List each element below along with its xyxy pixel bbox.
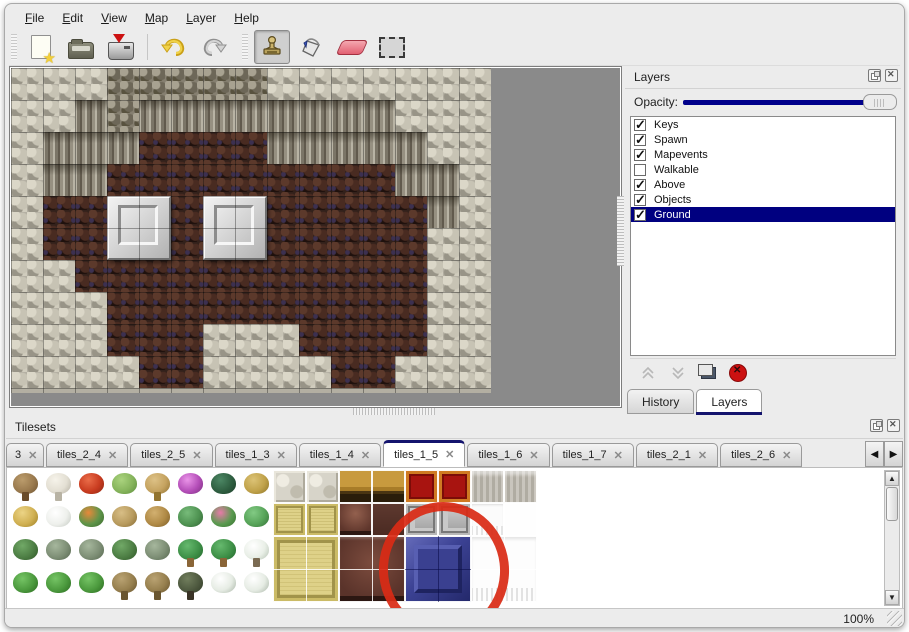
map-tile: [43, 260, 75, 292]
map-tile: [331, 132, 363, 164]
map-tile: [299, 68, 331, 100]
layers-dock-title: Layers: [634, 70, 670, 84]
scrollbar-thumb[interactable]: [886, 487, 898, 521]
vertical-splitter[interactable]: [617, 196, 624, 266]
map-tile: [11, 132, 43, 164]
close-panel-icon[interactable]: [885, 69, 898, 82]
layer-row-ground[interactable]: Ground: [631, 207, 895, 222]
map-tile: [139, 292, 171, 324]
map-tile: [107, 292, 139, 324]
tileset-tile-bush-pink[interactable]: [174, 470, 207, 503]
tileset-scrollbar[interactable]: ▲ ▼: [884, 470, 900, 606]
dock-tab-layers[interactable]: Layers: [696, 389, 762, 414]
map-tile: [43, 292, 75, 324]
tileset-tile-bush-gray[interactable]: [141, 536, 174, 569]
map-tile: [299, 132, 331, 164]
tileset-tile-sprouts[interactable]: [108, 536, 141, 569]
map-tile: [203, 132, 235, 164]
delete-layer-button[interactable]: [728, 363, 748, 383]
map-tile: [331, 164, 363, 196]
map-tile: [139, 100, 171, 132]
eraser-tool-button[interactable]: [334, 30, 370, 64]
tileset-tab-tiles_1_7[interactable]: tiles_1_7✕: [552, 443, 634, 467]
map-tile: [395, 324, 427, 356]
screenshot-stage: FileEditViewMapLayerHelp ★: [0, 0, 909, 632]
menu-item-edit[interactable]: Edit: [54, 9, 91, 27]
map-tile: [459, 100, 491, 132]
tileset-tile-tree-dead[interactable]: [42, 470, 75, 503]
tileset-content[interactable]: ▲ ▼: [6, 467, 903, 609]
tileset-tab-tiles_1_3[interactable]: tiles_1_3✕: [215, 443, 297, 467]
layer-row-walkable[interactable]: Walkable: [631, 162, 895, 177]
tilesets-dock-title: Tilesets: [15, 420, 56, 434]
layer-visibility-checkbox[interactable]: [634, 194, 646, 206]
scroll-tabs-right-button[interactable]: ▶: [884, 441, 903, 467]
redo-button[interactable]: [196, 30, 232, 64]
map-tile: [299, 164, 331, 196]
tileset-tab-3[interactable]: 3✕: [6, 443, 44, 467]
toolbar: ★: [9, 29, 900, 66]
map-tile: [171, 356, 203, 388]
map-tile: [459, 324, 491, 356]
platform-tile: [107, 196, 171, 260]
tileset-tile-carpet[interactable]: [405, 470, 438, 503]
map-tile: [203, 100, 235, 132]
tileset-tile-dark-tree[interactable]: [174, 569, 207, 602]
tileset-tab-tiles_2_5[interactable]: tiles_2_5✕: [130, 443, 212, 467]
map-tile: [299, 260, 331, 292]
tileset-tile-snow-conifer[interactable]: [207, 569, 240, 602]
map-tile: [395, 68, 427, 100]
tileset-tile-wood[interactable]: [372, 470, 405, 503]
layers-dock-header: Layers: [625, 66, 901, 89]
map-tile: [11, 260, 43, 292]
map-tile: [203, 260, 235, 292]
map-tile: [75, 196, 107, 228]
map-tile: [43, 324, 75, 356]
map-tile: [459, 164, 491, 196]
save-icon: [108, 42, 134, 60]
new-document-icon: ★: [31, 35, 51, 59]
map-tile: [395, 132, 427, 164]
map-tile: [299, 228, 331, 260]
duplicate-layer-button[interactable]: [698, 363, 718, 383]
tileset-tile-rose-bush[interactable]: [207, 503, 240, 536]
redo-icon: [201, 36, 227, 58]
tileset-tile-grayfab[interactable]: [471, 470, 504, 503]
map-tile: [43, 164, 75, 196]
map-tile: [459, 228, 491, 260]
layers-dock: Layers Opacity: KeysSpawnMapeventsWalkab…: [625, 66, 901, 416]
tab-close-icon[interactable]: ✕: [361, 449, 370, 462]
map-tile: [171, 228, 203, 260]
layer-name: Ground: [654, 209, 691, 221]
map-tile: [139, 260, 171, 292]
tab-close-icon[interactable]: ✕: [529, 449, 538, 462]
map-tile: [459, 260, 491, 292]
tileset-tile-flower-red[interactable]: [75, 470, 108, 503]
map-tile: [331, 292, 363, 324]
menu-item-view[interactable]: View: [93, 9, 135, 27]
undo-button[interactable]: [156, 30, 192, 64]
map-tile: [363, 196, 395, 228]
map-tile: [363, 228, 395, 260]
layer-name: Objects: [654, 194, 691, 206]
tab-label: tiles_1_5: [394, 449, 438, 461]
layer-list: KeysSpawnMapeventsWalkableAboveObjectsGr…: [630, 116, 896, 356]
map-tile: [203, 292, 235, 324]
tileset-tab-tiles_1_4[interactable]: tiles_1_4✕: [299, 443, 381, 467]
undo-icon: [161, 36, 187, 58]
map-tile: [11, 228, 43, 260]
tileset-tile-white[interactable]: [504, 503, 537, 536]
layer-name: Above: [654, 179, 685, 191]
map-canvas[interactable]: [11, 68, 491, 393]
tab-label: tiles_2_5: [141, 449, 185, 461]
map-tile: [427, 260, 459, 292]
menu-item-help[interactable]: Help: [226, 9, 267, 27]
tileset-tile-stump[interactable]: [108, 470, 141, 503]
map-tile: [427, 324, 459, 356]
tileset-tile-lilypad-big[interactable]: [240, 503, 273, 536]
zoom-level: 100%: [843, 612, 874, 626]
map-tile: [331, 100, 363, 132]
map-tile: [331, 196, 363, 228]
tileset-tile-lilypad[interactable]: [174, 503, 207, 536]
map-tile: [235, 164, 267, 196]
toolbar-grip[interactable]: [11, 34, 17, 60]
delete-icon: [729, 364, 747, 382]
horizontal-splitter[interactable]: [353, 408, 435, 415]
tileset-tile-dead-tree[interactable]: [141, 569, 174, 602]
map-tile: [139, 132, 171, 164]
tileset-tile-tatami[interactable]: [306, 503, 339, 536]
map-tile: [107, 324, 139, 356]
map-tile: [75, 260, 107, 292]
map-tile: [427, 196, 459, 228]
map-tile: [75, 292, 107, 324]
app-window: FileEditViewMapLayerHelp ★: [4, 3, 905, 628]
map-tile: [235, 100, 267, 132]
map-tile: [171, 260, 203, 292]
tileset-tile-carpet[interactable]: [438, 470, 471, 503]
tab-label: 3: [15, 449, 21, 461]
map-tile: [459, 68, 491, 100]
map-tile: [331, 260, 363, 292]
map-tile: [235, 68, 267, 100]
eraser-icon: [336, 40, 369, 55]
map-tile: [427, 356, 459, 388]
tab-label: tiles_2_6: [731, 449, 775, 461]
map-tile: [299, 356, 331, 388]
map-tile: [427, 228, 459, 260]
map-tile: [11, 356, 43, 388]
tileset-tile-palm[interactable]: [207, 536, 240, 569]
layer-visibility-checkbox[interactable]: [634, 134, 646, 146]
move-layer-up-button[interactable]: [638, 363, 658, 383]
map-tile: [395, 260, 427, 292]
tileset-tile-conifer[interactable]: [75, 569, 108, 602]
map-tile: [203, 68, 235, 100]
map-tile: [75, 100, 107, 132]
map-tile: [267, 100, 299, 132]
tab-close-icon[interactable]: ✕: [277, 449, 286, 462]
tileset-tile-tatami[interactable]: [273, 503, 306, 536]
map-tile: [43, 100, 75, 132]
chevron-down-icon: [670, 365, 686, 381]
tileset-tile-stone[interactable]: [273, 470, 306, 503]
tab-label: tiles_1_4: [310, 449, 354, 461]
layer-row-spawn[interactable]: Spawn: [631, 132, 895, 147]
scroll-tabs-left-button[interactable]: ◀: [865, 441, 884, 467]
status-bar: 100%: [5, 608, 904, 628]
map-tile: [331, 356, 363, 388]
map-tile: [299, 100, 331, 132]
map-canvas-panel: [9, 66, 622, 408]
tileset-tile-dead-tree[interactable]: [108, 569, 141, 602]
map-tile: [267, 164, 299, 196]
map-tile: [363, 356, 395, 388]
layer-row-objects[interactable]: Objects: [631, 192, 895, 207]
tileset-tile-seat[interactable]: [339, 503, 372, 536]
tab-close-icon[interactable]: ✕: [614, 449, 623, 462]
opacity-slider[interactable]: [683, 94, 897, 110]
map-tile: [331, 324, 363, 356]
layer-name: Keys: [654, 119, 678, 131]
layer-name: Walkable: [654, 164, 699, 176]
float-panel-icon[interactable]: [868, 69, 881, 82]
map-tile: [427, 68, 459, 100]
tileset-tile-leaves[interactable]: [141, 503, 174, 536]
tab-label: tiles_1_3: [226, 449, 270, 461]
map-tile: [459, 292, 491, 324]
dock-tab-history[interactable]: History: [627, 389, 694, 414]
tileset-tile-bush-gray[interactable]: [42, 536, 75, 569]
map-tile: [395, 164, 427, 196]
dock-tab-bar: HistoryLayers: [627, 388, 764, 414]
toolbar-separator: [147, 34, 148, 60]
map-tile: [395, 292, 427, 324]
map-tile: [363, 260, 395, 292]
tileset-tile-trunk-tan[interactable]: [141, 470, 174, 503]
map-tile: [267, 132, 299, 164]
tileset-tile-hay[interactable]: [9, 503, 42, 536]
select-tool-button[interactable]: [374, 30, 410, 64]
map-tile: [171, 324, 203, 356]
tileset-tile-snow-pile[interactable]: [42, 503, 75, 536]
map-tile: [203, 164, 235, 196]
tab-label: tiles_2_1: [647, 449, 691, 461]
map-tile: [171, 196, 203, 228]
map-tile: [395, 228, 427, 260]
close-panel-icon[interactable]: [887, 419, 900, 432]
map-tile: [395, 100, 427, 132]
map-tile: [235, 356, 267, 388]
map-tile: [171, 132, 203, 164]
opacity-slider-handle[interactable]: [863, 94, 897, 110]
map-tile: [363, 132, 395, 164]
tileset-tab-tiles_2_4[interactable]: tiles_2_4✕: [46, 443, 128, 467]
tab-close-icon[interactable]: ✕: [445, 448, 454, 461]
tileset-tile-dry-grass[interactable]: [108, 503, 141, 536]
map-tile: [267, 260, 299, 292]
tileset-tile-flowers-orange[interactable]: [75, 503, 108, 536]
scroll-up-button[interactable]: ▲: [885, 471, 899, 486]
save-button[interactable]: [103, 30, 139, 64]
platform-tile: [203, 196, 267, 260]
map-tile: [203, 324, 235, 356]
tileset-tile-tatami-big[interactable]: [273, 536, 339, 602]
tileset-tile-sprouts[interactable]: [9, 536, 42, 569]
map-tile: [75, 324, 107, 356]
layer-visibility-checkbox[interactable]: [634, 179, 646, 191]
tab-close-icon[interactable]: ✕: [698, 449, 707, 462]
map-tile: [235, 260, 267, 292]
tileset-tile-bush-gray[interactable]: [75, 536, 108, 569]
map-tile: [459, 356, 491, 388]
layer-row-keys[interactable]: Keys: [631, 117, 895, 132]
tileset-tab-tiles_1_6[interactable]: tiles_1_6✕: [467, 443, 549, 467]
new-map-button[interactable]: ★: [23, 30, 59, 64]
map-tile: [11, 100, 43, 132]
tileset-tile-grayfab[interactable]: [504, 470, 537, 503]
map-tile: [139, 356, 171, 388]
tab-close-icon[interactable]: ✕: [108, 449, 117, 462]
map-tile: [75, 132, 107, 164]
map-tile: [267, 196, 299, 228]
map-tile: [267, 324, 299, 356]
map-tile: [427, 100, 459, 132]
map-tile: [171, 164, 203, 196]
fill-tool-button[interactable]: [294, 30, 330, 64]
duplicate-icon: [701, 367, 716, 379]
layer-row-mapevents[interactable]: Mapevents: [631, 147, 895, 162]
layer-visibility-checkbox[interactable]: [634, 119, 646, 131]
map-tile: [363, 324, 395, 356]
toolbar-grip[interactable]: [242, 34, 248, 60]
layer-buttons-row: [630, 358, 896, 387]
map-tile: [43, 132, 75, 164]
map-tile: [267, 228, 299, 260]
map-tile: [107, 100, 139, 132]
map-tile: [107, 356, 139, 388]
map-tile: [11, 196, 43, 228]
opacity-label: Opacity:: [634, 95, 678, 109]
move-layer-down-button[interactable]: [668, 363, 688, 383]
map-tile: [11, 324, 43, 356]
menu-bar: FileEditViewMapLayerHelp: [9, 7, 900, 29]
map-tile: [171, 100, 203, 132]
map-tile: [11, 68, 43, 100]
tilesets-dock: Tilesets 3✕tiles_2_4✕tiles_2_5✕tiles_1_3…: [6, 416, 903, 612]
layer-visibility-checkbox[interactable]: [634, 149, 646, 161]
layer-row-above[interactable]: Above: [631, 177, 895, 192]
map-tile: [11, 292, 43, 324]
map-tile: [459, 196, 491, 228]
tileset-tile-wood[interactable]: [339, 470, 372, 503]
map-tile: [43, 356, 75, 388]
stamp-tool-button[interactable]: [254, 30, 290, 64]
tileset-tile-tree-bare[interactable]: [9, 470, 42, 503]
map-tile: [331, 68, 363, 100]
map-tile: [139, 324, 171, 356]
map-tile: [43, 68, 75, 100]
tab-close-icon[interactable]: ✕: [192, 449, 201, 462]
tileset-tile-palm-dark[interactable]: [207, 470, 240, 503]
window-resize-grip[interactable]: [887, 611, 902, 626]
open-button[interactable]: [63, 30, 99, 64]
tileset-tile-plant-yellow[interactable]: [240, 470, 273, 503]
map-tile: [299, 324, 331, 356]
tab-label: tiles_2_4: [57, 449, 101, 461]
map-tile: [427, 292, 459, 324]
stamp-icon: [261, 35, 283, 59]
tileset-tile-conifer[interactable]: [9, 569, 42, 602]
menu-item-map[interactable]: Map: [137, 9, 176, 27]
tileset-tab-tiles_2_1[interactable]: tiles_2_1✕: [636, 443, 718, 467]
tileset-tile-stone[interactable]: [306, 470, 339, 503]
map-tile: [75, 164, 107, 196]
layer-name: Spawn: [654, 134, 688, 146]
map-tile: [235, 324, 267, 356]
paint-bucket-icon: [299, 35, 325, 59]
map-tile: [267, 356, 299, 388]
tileset-tile-snow-conifer[interactable]: [240, 569, 273, 602]
menu-item-layer[interactable]: Layer: [178, 9, 224, 27]
map-tile: [267, 68, 299, 100]
tileset-tile-conifer[interactable]: [42, 569, 75, 602]
map-tile: [299, 292, 331, 324]
tileset-tile-palm[interactable]: [174, 536, 207, 569]
map-tile: [43, 228, 75, 260]
map-tile: [203, 356, 235, 388]
tileset-tab-bar: 3✕tiles_2_4✕tiles_2_5✕tiles_1_3✕tiles_1_…: [6, 440, 903, 467]
float-panel-icon[interactable]: [870, 419, 883, 432]
tilesets-dock-header: Tilesets: [6, 416, 903, 439]
opacity-slider-track: [683, 100, 889, 105]
tab-close-icon[interactable]: ✕: [28, 449, 37, 462]
map-tile: [299, 196, 331, 228]
menu-item-file[interactable]: File: [17, 9, 52, 27]
map-tile: [267, 292, 299, 324]
map-tile: [139, 164, 171, 196]
map-tile: [75, 228, 107, 260]
map-tile: [331, 228, 363, 260]
open-folder-icon: [68, 42, 94, 59]
map-tile: [107, 164, 139, 196]
map-tile: [171, 292, 203, 324]
tileset-tile-snow-tree[interactable]: [240, 536, 273, 569]
tileset-tab-tiles_2_6[interactable]: tiles_2_6✕: [720, 443, 802, 467]
map-tile: [427, 132, 459, 164]
map-tile: [427, 164, 459, 196]
tab-scroll-arrows: ◀ ▶: [865, 441, 903, 467]
map-tile: [171, 68, 203, 100]
layer-name: Mapevents: [654, 149, 708, 161]
map-tile: [235, 132, 267, 164]
map-tile: [395, 356, 427, 388]
map-tile: [363, 100, 395, 132]
scroll-down-button[interactable]: ▼: [885, 590, 899, 605]
opacity-row: Opacity:: [625, 92, 901, 112]
tileset-tab-tiles_1_5[interactable]: tiles_1_5✕: [383, 440, 465, 467]
layer-visibility-checkbox[interactable]: [634, 164, 646, 176]
map-tile: [107, 260, 139, 292]
tab-close-icon[interactable]: ✕: [782, 449, 791, 462]
selection-rectangle-icon: [379, 37, 405, 58]
layer-visibility-checkbox[interactable]: [634, 209, 646, 221]
map-tile: [459, 132, 491, 164]
